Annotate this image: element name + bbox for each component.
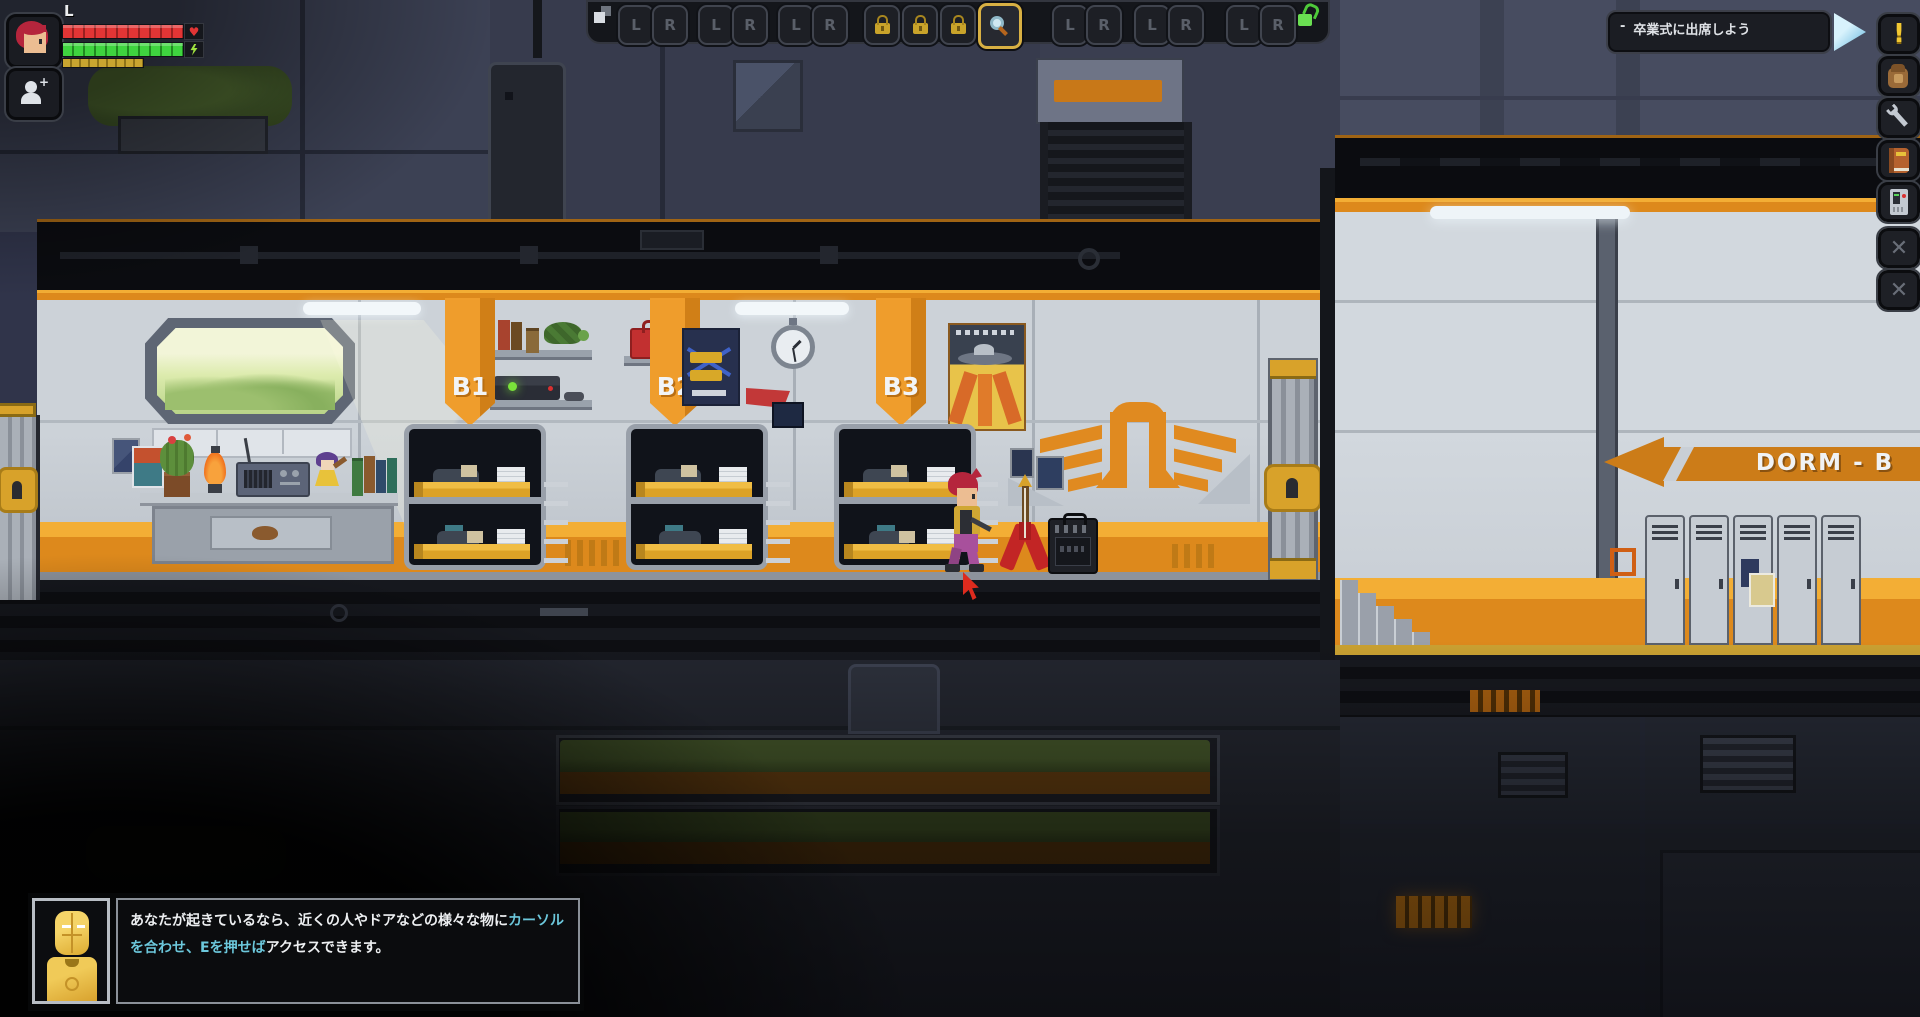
ufo-poster-text bbox=[956, 330, 1014, 335]
stair-step bbox=[1340, 580, 1358, 650]
hotbar-slot-selected-inspect[interactable] bbox=[978, 3, 1022, 49]
hall-floor bbox=[1335, 645, 1920, 655]
crafting-button[interactable] bbox=[1878, 98, 1920, 138]
grass bbox=[560, 740, 1210, 774]
bunk-bed-b2[interactable] bbox=[626, 424, 768, 570]
glowing-vent bbox=[1396, 896, 1472, 928]
dialog-text: あなたが起きているなら、近くの人やドアなどの様々な物に bbox=[130, 913, 508, 929]
bed-label-b1: B1 bbox=[445, 372, 495, 401]
book-icon bbox=[1889, 148, 1909, 173]
bread-item[interactable] bbox=[252, 526, 278, 540]
hotbar-slot-6R[interactable]: R bbox=[1260, 5, 1296, 45]
slot-letter: R bbox=[824, 16, 836, 34]
book-spine bbox=[376, 460, 386, 493]
pipe-coupler bbox=[240, 246, 258, 264]
shelf bbox=[490, 400, 592, 410]
portrait-eye bbox=[39, 39, 42, 44]
mattress-top bbox=[414, 482, 530, 497]
wall-square-frame bbox=[1610, 548, 1636, 576]
hall-ceiling-band bbox=[1335, 138, 1920, 198]
wainscot-vent bbox=[1172, 544, 1216, 568]
close-window-button-1[interactable]: ✕ bbox=[1878, 228, 1920, 268]
dorm-underfloor bbox=[0, 580, 1340, 660]
console-device-icon bbox=[1890, 189, 1908, 215]
planter bbox=[118, 116, 268, 154]
ceiling-hatch bbox=[640, 230, 704, 250]
close-window-button-2[interactable]: ✕ bbox=[1878, 270, 1920, 310]
magnifier-icon bbox=[990, 16, 1010, 36]
folded-sheets bbox=[719, 467, 747, 482]
small-frame bbox=[1010, 448, 1034, 478]
lightning-icon bbox=[189, 44, 199, 56]
bunk-ladder[interactable] bbox=[766, 482, 790, 570]
bunk-divider bbox=[631, 497, 763, 504]
bed-item-box bbox=[891, 465, 907, 477]
slot-letter: R bbox=[1272, 16, 1284, 34]
hotbar-slot-3R[interactable]: R bbox=[812, 5, 848, 45]
dorm-floor-edge bbox=[37, 572, 1322, 580]
turtle-plush bbox=[544, 322, 582, 344]
portrait-face bbox=[24, 32, 46, 53]
close-icon: ✕ bbox=[1890, 278, 1908, 303]
hall-wall-seam bbox=[1335, 300, 1920, 303]
blanket bbox=[659, 531, 701, 544]
radio-slider bbox=[280, 482, 300, 485]
hotbar-slot-2L[interactable]: L bbox=[698, 5, 734, 45]
pillar-left bbox=[0, 415, 40, 600]
cactus-flower bbox=[184, 434, 191, 441]
shutter-door bbox=[1040, 122, 1192, 232]
pipe-coupler bbox=[820, 246, 838, 264]
inventory-button[interactable] bbox=[1878, 56, 1920, 96]
movie-poster-caption bbox=[692, 390, 726, 396]
folded-sheets bbox=[497, 467, 525, 482]
locker[interactable] bbox=[1689, 515, 1729, 645]
game-viewport: B1 B2 B3 bbox=[0, 0, 1920, 1017]
sail-dialog-text-panel: あなたが起きているなら、近くの人やドアなどの様々な物にカーソルを合わせ、Eを押せ… bbox=[116, 898, 580, 1004]
panel-seam bbox=[300, 0, 305, 232]
hotbar-slot-4R[interactable]: R bbox=[1086, 5, 1122, 45]
hall-wall-seam bbox=[1335, 430, 1920, 433]
hall-underfloor bbox=[1335, 655, 1920, 717]
poster-small bbox=[132, 446, 164, 488]
bunk-divider bbox=[409, 497, 541, 504]
lock-icon bbox=[951, 23, 966, 34]
hotbar-slot-5L[interactable]: L bbox=[1134, 5, 1170, 45]
player-status: L ♥ + bbox=[0, 0, 260, 120]
shelf-book bbox=[511, 322, 522, 350]
folded-sheets bbox=[497, 529, 525, 544]
slot-letter: L bbox=[1147, 16, 1157, 34]
slot-letter: R bbox=[1098, 16, 1110, 34]
pipe bbox=[533, 0, 542, 58]
underfloor-vent bbox=[1470, 690, 1540, 712]
locker[interactable] bbox=[1645, 515, 1685, 645]
hotbar-slot-5R[interactable]: R bbox=[1168, 5, 1204, 45]
protectorate-emblem bbox=[1040, 402, 1236, 502]
quest-title: 卒業式に出席しよう bbox=[1633, 19, 1750, 38]
health-bar-cap: ♥ bbox=[184, 23, 204, 40]
hall-ceiling-light bbox=[1430, 206, 1630, 219]
hotbar-slot-locked-2[interactable] bbox=[902, 5, 938, 45]
background-window-slab bbox=[733, 60, 803, 132]
small-frame bbox=[772, 402, 804, 428]
slot-letter: R bbox=[664, 16, 676, 34]
background-door[interactable] bbox=[488, 62, 566, 226]
hotbar-slot-2R[interactable]: R bbox=[732, 5, 768, 45]
hotbar-slot-1R[interactable]: R bbox=[652, 5, 688, 45]
quests-button[interactable]: ! bbox=[1878, 14, 1920, 54]
slot-letter: L bbox=[711, 16, 721, 34]
bed-banner-b1 bbox=[445, 298, 495, 426]
bush bbox=[86, 826, 286, 880]
panel-seam bbox=[0, 726, 1340, 730]
wall-vent bbox=[1498, 752, 1568, 798]
sail-avatar-frame bbox=[32, 898, 110, 1004]
lava-lamp[interactable] bbox=[204, 452, 226, 485]
book-spine bbox=[387, 458, 397, 493]
flying-v-guitar[interactable] bbox=[1005, 478, 1045, 574]
bed-item-box bbox=[899, 531, 915, 543]
shelf-book bbox=[498, 320, 510, 350]
radio-grill bbox=[244, 470, 272, 488]
unlock-toggle-icon[interactable] bbox=[1298, 6, 1318, 30]
codex-button[interactable] bbox=[1878, 140, 1920, 180]
underfloor-light bbox=[540, 608, 588, 616]
locker[interactable] bbox=[1777, 515, 1817, 645]
heart-icon: ♥ bbox=[189, 26, 200, 38]
shutter-sign-bar bbox=[1054, 80, 1162, 102]
slot-letter: R bbox=[744, 16, 756, 34]
lava-lamp-base bbox=[208, 484, 222, 493]
sail-dialog: あなたが起きているなら、近くの人やドアなどの様々な物にカーソルを合わせ、Eを押せ… bbox=[28, 893, 584, 1011]
slot-letter: L bbox=[791, 16, 801, 34]
slot-letter: L bbox=[631, 16, 641, 34]
cactus-flower bbox=[168, 436, 176, 444]
stair-step bbox=[1376, 606, 1394, 650]
pipe-valve bbox=[1078, 248, 1100, 270]
locker-row[interactable] bbox=[1645, 515, 1865, 647]
pipe-coupler bbox=[520, 246, 538, 264]
energy-bar bbox=[62, 42, 184, 57]
cabinet-seam bbox=[282, 428, 284, 454]
energy-bar-cap bbox=[184, 41, 204, 58]
mattress-bottom bbox=[636, 544, 752, 559]
hotbar-slot-4L[interactable]: L bbox=[1052, 5, 1088, 45]
bunk-ladder[interactable] bbox=[544, 482, 568, 570]
shelf bbox=[490, 350, 592, 360]
green-glow-orb bbox=[508, 382, 517, 391]
bunk-bed-b1[interactable] bbox=[404, 424, 546, 570]
dialog-text: アクセスできます。 bbox=[266, 940, 390, 956]
hall-ceiling-detail bbox=[1360, 158, 1900, 166]
party-invite-button[interactable]: + bbox=[6, 68, 62, 120]
hotbar-slot-6L[interactable]: L bbox=[1226, 5, 1262, 45]
sail-robot-avatar bbox=[35, 901, 107, 1001]
ceiling-pipe bbox=[60, 252, 1120, 259]
plus-icon: + bbox=[39, 77, 49, 87]
hotbar-slot-locked-3[interactable] bbox=[940, 5, 976, 45]
folded-sheets bbox=[719, 529, 747, 544]
collections-button[interactable] bbox=[1878, 182, 1920, 222]
swap-slots-icon[interactable] bbox=[594, 6, 612, 24]
dorm-b-sign-label: DORM - B bbox=[1735, 450, 1915, 476]
hotbar-slot-1L[interactable]: L bbox=[618, 5, 654, 45]
wall-seam bbox=[1257, 300, 1260, 522]
amp[interactable] bbox=[1048, 518, 1098, 574]
panel-seam bbox=[1340, 820, 1920, 824]
close-icon: ✕ bbox=[1890, 236, 1908, 261]
console-light bbox=[548, 386, 553, 391]
lock-icon bbox=[913, 23, 928, 34]
door-window bbox=[505, 92, 513, 100]
hotbar-slot-3L[interactable]: L bbox=[778, 5, 814, 45]
window-foliage bbox=[165, 370, 335, 410]
panel-seam bbox=[1340, 96, 1920, 100]
backpack-icon bbox=[1888, 64, 1910, 88]
movie-poster-bar bbox=[690, 352, 722, 363]
book-spine bbox=[364, 456, 375, 493]
slot-letter: L bbox=[1239, 16, 1249, 34]
background-door[interactable] bbox=[848, 664, 940, 734]
bed-item-box bbox=[467, 531, 483, 543]
ufo-dome bbox=[974, 344, 994, 355]
panel-seam bbox=[1640, 717, 1645, 1017]
player-character bbox=[942, 474, 988, 574]
radio-knob bbox=[292, 470, 299, 477]
person-icon-body bbox=[21, 93, 41, 104]
turtle-head bbox=[578, 330, 589, 341]
doll-face bbox=[321, 460, 334, 470]
locker-note bbox=[1749, 573, 1775, 607]
ufo-ray bbox=[978, 374, 992, 426]
dirt bbox=[560, 842, 1210, 864]
bed-banner-b3 bbox=[876, 298, 926, 426]
underfloor-light bbox=[330, 604, 348, 622]
wrench-icon bbox=[1882, 101, 1916, 135]
controller bbox=[564, 392, 584, 401]
bed-label-b3: B3 bbox=[876, 372, 926, 401]
food-bar bbox=[62, 58, 144, 68]
ceiling-light bbox=[735, 302, 849, 315]
wall-vent bbox=[1700, 735, 1796, 793]
bed-item-box bbox=[681, 465, 697, 477]
bed-item-box bbox=[461, 465, 477, 477]
radio-knob bbox=[280, 470, 287, 477]
grass bbox=[560, 812, 1210, 844]
ceiling-light bbox=[303, 302, 421, 315]
pillar-right bbox=[1268, 358, 1318, 580]
quest-bullet: - bbox=[1620, 19, 1625, 34]
hotbar-slot-locked-1[interactable] bbox=[864, 5, 900, 45]
movie-poster-bar bbox=[690, 370, 722, 381]
stair-step bbox=[1358, 593, 1376, 650]
shelf-jar bbox=[526, 328, 539, 353]
hotbar: L R L R L R L R L R L R bbox=[586, 0, 1330, 48]
slot-letter: R bbox=[1180, 16, 1192, 34]
dirt bbox=[560, 772, 1210, 794]
locker[interactable] bbox=[1733, 515, 1773, 645]
mattress-top bbox=[636, 482, 752, 497]
lock-icon bbox=[875, 23, 890, 34]
book-spine bbox=[352, 458, 363, 496]
slot-letter: L bbox=[1065, 16, 1075, 34]
mattress-bottom bbox=[414, 544, 530, 559]
quest-tracker[interactable]: - 卒業式に出席しよう bbox=[1606, 10, 1832, 54]
person-icon bbox=[25, 81, 37, 93]
lava-lamp-cap bbox=[211, 446, 220, 453]
health-bar bbox=[62, 24, 184, 39]
panel-seam bbox=[1480, 0, 1504, 140]
quest-exclamation-icon: ! bbox=[1893, 19, 1905, 49]
background-panel bbox=[1660, 850, 1920, 1017]
clock-knob bbox=[789, 318, 797, 325]
player-portrait[interactable] bbox=[6, 14, 62, 68]
cactus bbox=[160, 440, 194, 476]
locker[interactable] bbox=[1821, 515, 1861, 645]
level-label: L bbox=[64, 2, 74, 20]
